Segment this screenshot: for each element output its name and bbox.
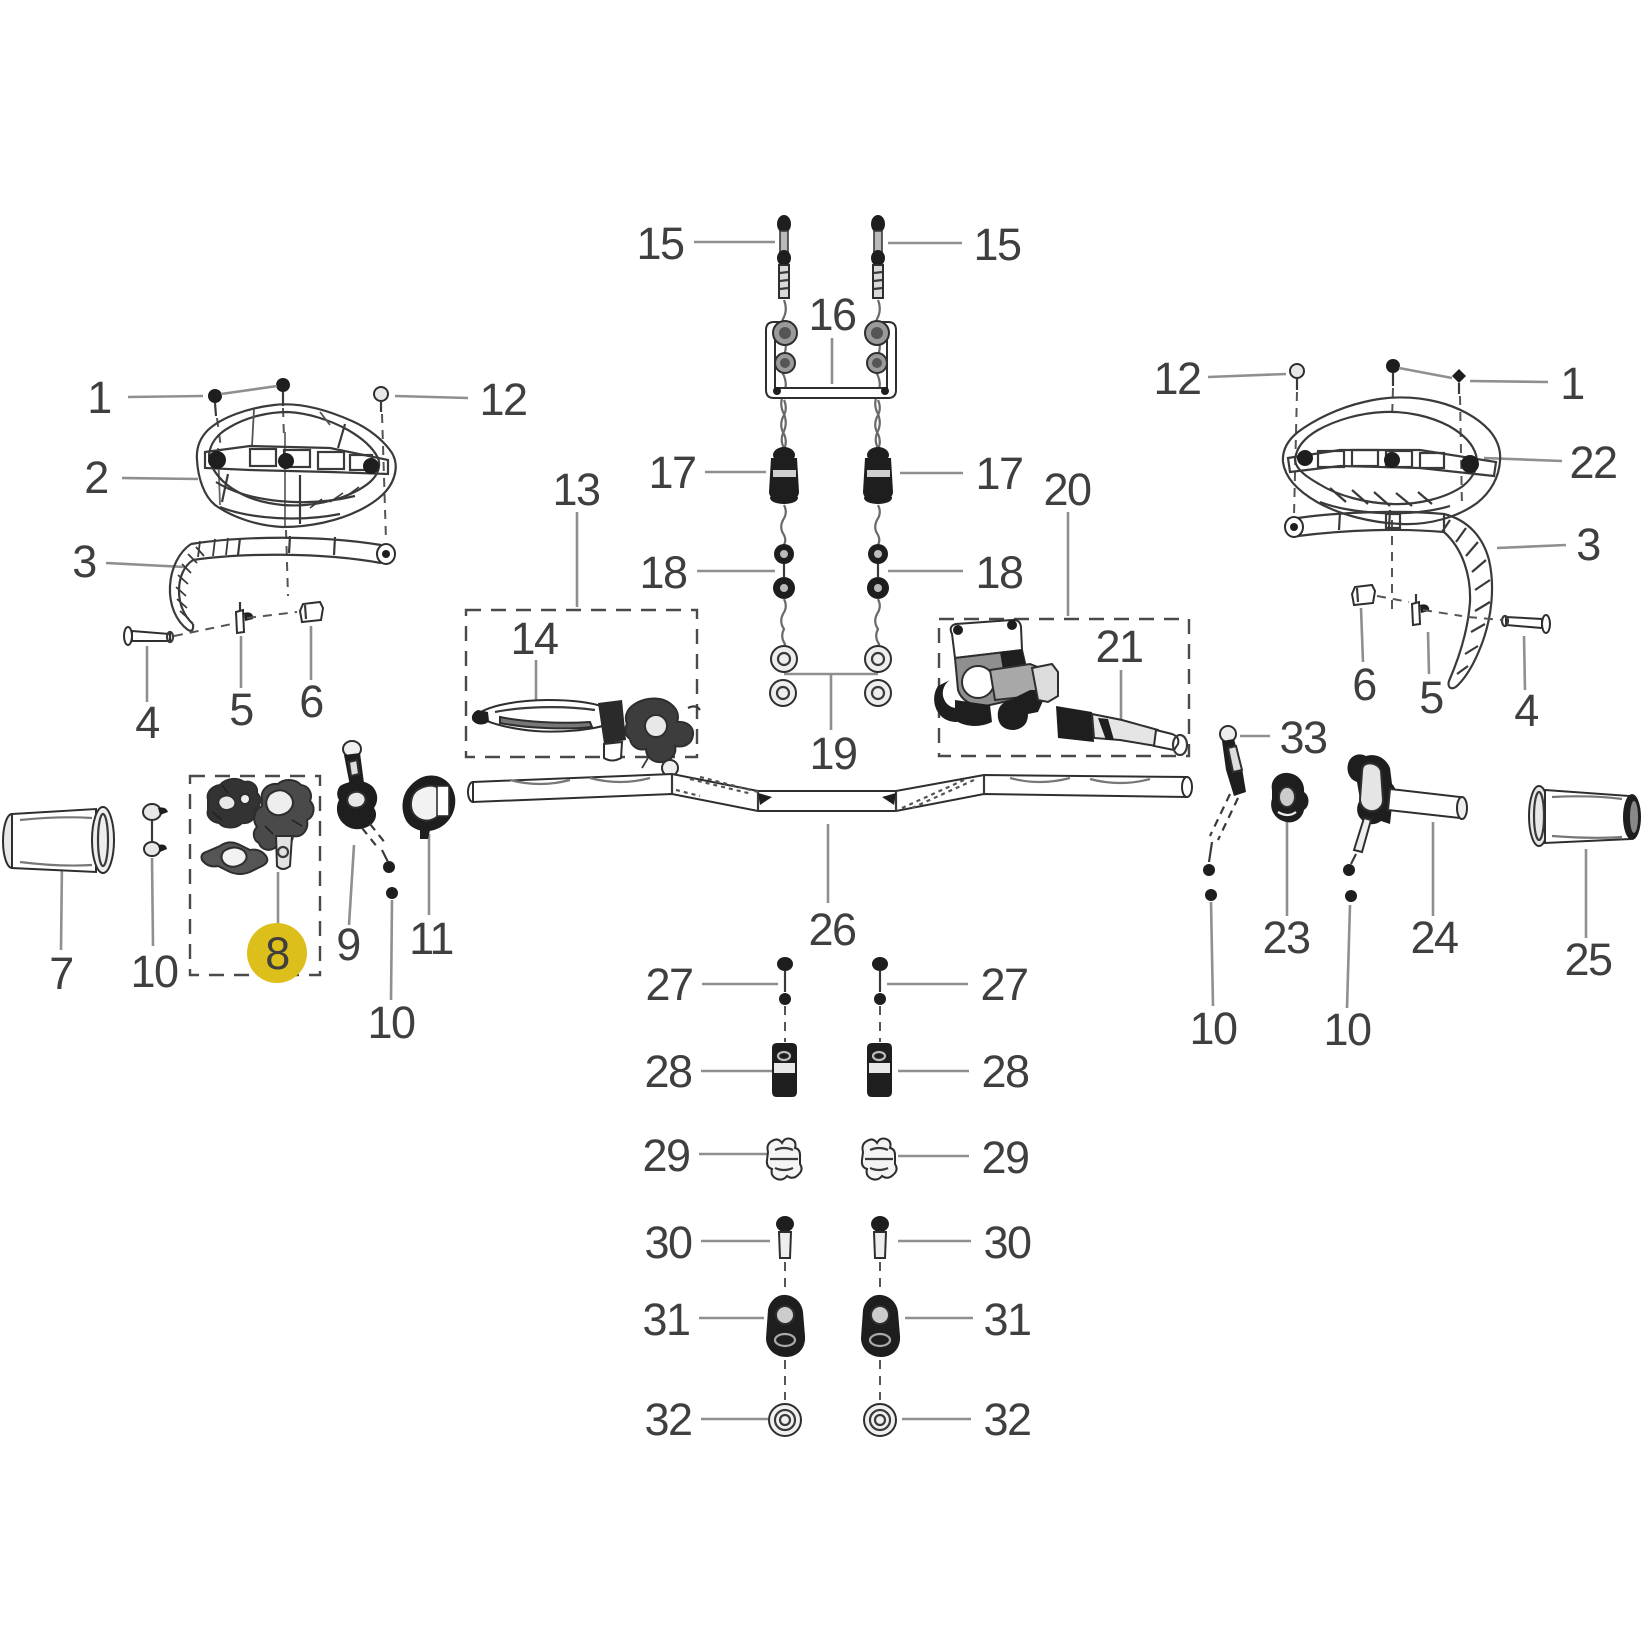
svg-text:27: 27 [645, 959, 692, 1010]
svg-text:12: 12 [1153, 353, 1200, 404]
svg-text:28: 28 [644, 1046, 692, 1097]
svg-text:15: 15 [636, 218, 684, 269]
svg-text:10: 10 [367, 997, 415, 1048]
svg-text:11: 11 [409, 913, 453, 964]
svg-text:5: 5 [229, 684, 253, 735]
svg-text:16: 16 [808, 289, 856, 340]
svg-text:8: 8 [265, 928, 289, 979]
svg-text:32: 32 [644, 1394, 691, 1445]
svg-text:7: 7 [49, 948, 73, 999]
svg-text:3: 3 [1576, 519, 1600, 570]
svg-text:2: 2 [84, 452, 108, 503]
svg-text:18: 18 [975, 547, 1023, 598]
svg-text:6: 6 [1352, 659, 1376, 710]
svg-text:9: 9 [336, 919, 360, 970]
svg-text:29: 29 [981, 1132, 1028, 1183]
svg-text:30: 30 [983, 1217, 1031, 1268]
svg-text:17: 17 [648, 447, 695, 498]
svg-text:32: 32 [983, 1394, 1030, 1445]
svg-text:6: 6 [299, 676, 323, 727]
svg-text:27: 27 [980, 959, 1027, 1010]
svg-text:17: 17 [975, 448, 1022, 499]
svg-text:24: 24 [1410, 912, 1458, 963]
svg-text:31: 31 [642, 1294, 689, 1345]
svg-text:4: 4 [135, 697, 159, 748]
svg-text:26: 26 [808, 904, 856, 955]
svg-text:25: 25 [1564, 934, 1612, 985]
svg-text:22: 22 [1569, 437, 1616, 488]
svg-text:14: 14 [510, 613, 558, 664]
svg-text:10: 10 [1189, 1003, 1237, 1054]
svg-text:1: 1 [1560, 358, 1584, 409]
svg-text:23: 23 [1262, 912, 1310, 963]
svg-text:15: 15 [973, 219, 1021, 270]
svg-text:29: 29 [642, 1130, 689, 1181]
svg-text:3: 3 [72, 536, 96, 587]
svg-text:4: 4 [1514, 685, 1538, 736]
svg-text:12: 12 [479, 374, 526, 425]
svg-text:13: 13 [552, 464, 600, 515]
svg-text:1: 1 [87, 372, 111, 423]
svg-text:21: 21 [1095, 621, 1142, 672]
svg-text:20: 20 [1043, 464, 1091, 515]
svg-text:10: 10 [130, 946, 178, 997]
svg-text:28: 28 [981, 1046, 1029, 1097]
svg-text:10: 10 [1323, 1004, 1371, 1055]
svg-text:5: 5 [1419, 672, 1443, 723]
svg-text:31: 31 [983, 1294, 1030, 1345]
svg-text:18: 18 [639, 547, 687, 598]
svg-text:30: 30 [644, 1217, 692, 1268]
svg-text:19: 19 [809, 728, 856, 779]
svg-text:33: 33 [1279, 712, 1327, 763]
